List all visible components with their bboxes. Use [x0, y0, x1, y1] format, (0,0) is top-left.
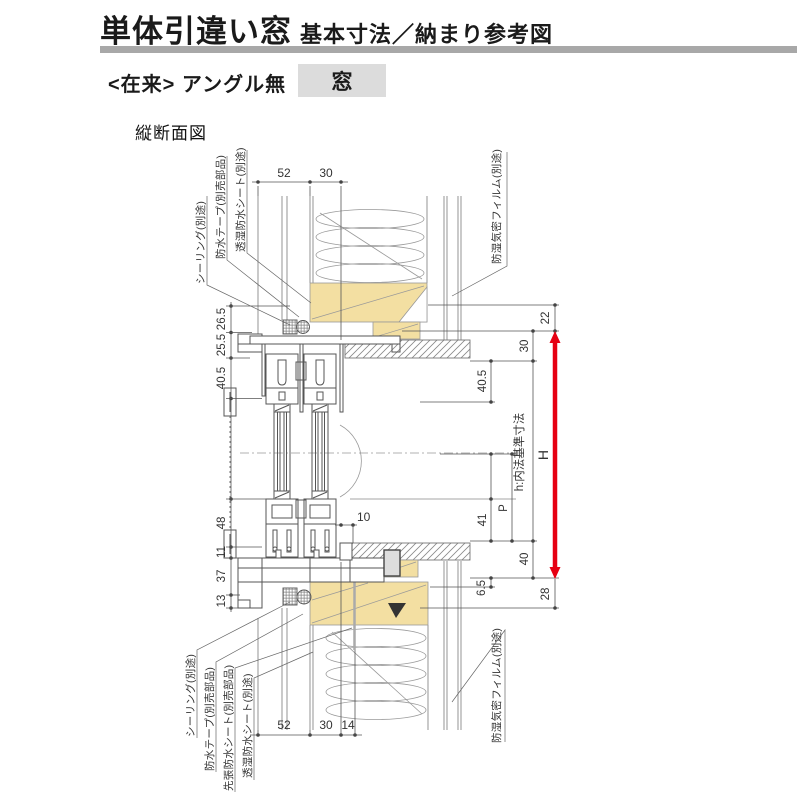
dim-left-48: 48: [216, 517, 228, 530]
annotation-vapor-film-bottom: 防湿気密フィルム(別途): [490, 628, 503, 743]
section-drawing: 52 30 52 30 14 26.5 25.5 40.5 48 11 37 1…: [0, 0, 800, 800]
sill-upstand-inner: [340, 543, 352, 560]
dim-left-25-5: 25.5: [216, 334, 228, 356]
dim-right-41: 41: [477, 514, 489, 527]
dim-H-label: H: [535, 450, 551, 460]
annotation-breathable-sheet-top: 透湿防水シート(別途): [234, 147, 247, 252]
annotation-waterproof-tape-top: 防水テープ(別売部品): [214, 155, 227, 259]
dim-right-P: P: [498, 504, 510, 512]
dim-left-37: 37: [216, 570, 228, 583]
annotations: シーリング(別途) 防水テープ(別売部品) 透湿防水シート(別途) 防湿気密フィ…: [184, 147, 507, 792]
sealing-bottom: [283, 588, 297, 605]
dim-left-40-5: 40.5: [216, 367, 228, 389]
dim-right-40-5: 40.5: [477, 370, 489, 392]
insect-screen: [224, 388, 236, 558]
insulation-top: [316, 210, 424, 283]
dim-right-30: 30: [519, 340, 531, 353]
roller-housing: [266, 524, 298, 557]
dim-left-13: 13: [216, 595, 228, 608]
glass-unit: [312, 404, 328, 499]
dim-bottom-52: 52: [277, 718, 291, 732]
dim-right-40: 40: [519, 553, 531, 566]
dim-gap-10: 10: [357, 510, 371, 524]
dim-right-28: 28: [540, 588, 552, 601]
roller-housing: [304, 524, 336, 557]
handle-swing-arc: [340, 425, 361, 497]
dim-right-6-5: 6.5: [476, 580, 488, 596]
backer-rod-top: [297, 321, 310, 334]
dim-left-11: 11: [216, 546, 228, 558]
dim-bottom-14: 14: [341, 718, 355, 732]
annotation-sealing-top: シーリング(別途): [194, 201, 207, 284]
arrow-head-down: [550, 567, 561, 579]
annotation-vapor-film-top: 防湿気密フィルム(別途): [490, 149, 503, 264]
interior-casing-hatch-bottom: [342, 543, 470, 560]
dimensions: 52 30 52 30 14 26.5 25.5 40.5 48 11 37 1…: [216, 166, 559, 737]
dim-top-30: 30: [319, 166, 333, 180]
dim-inner-height-label: h:内法基準寸法: [512, 413, 526, 492]
annotation-waterproof-tape-bottom: 防水テープ(別売部品): [203, 667, 216, 771]
arrow-head-up: [550, 331, 561, 343]
sill-upstand: [384, 550, 400, 576]
dim-right-22: 22: [540, 312, 552, 325]
backer-rod-bottom: [297, 590, 311, 604]
annotation-sealing-bottom: シーリング(別途): [184, 654, 197, 737]
dim-bottom-30: 30: [319, 718, 333, 732]
centerline: [240, 425, 516, 499]
dim-top-52: 52: [277, 166, 291, 180]
sash-inner: [266, 354, 298, 557]
annotation-pre-applied-sheet: 先張防水シート(別売部品): [222, 665, 235, 791]
annotation-breathable-sheet-bottom: 透湿防水シート(別途): [241, 673, 254, 778]
glass-unit: [274, 404, 290, 499]
height-arrow: [550, 331, 561, 579]
dim-left-26-5: 26.5: [216, 308, 228, 330]
sealing-top: [283, 320, 297, 334]
